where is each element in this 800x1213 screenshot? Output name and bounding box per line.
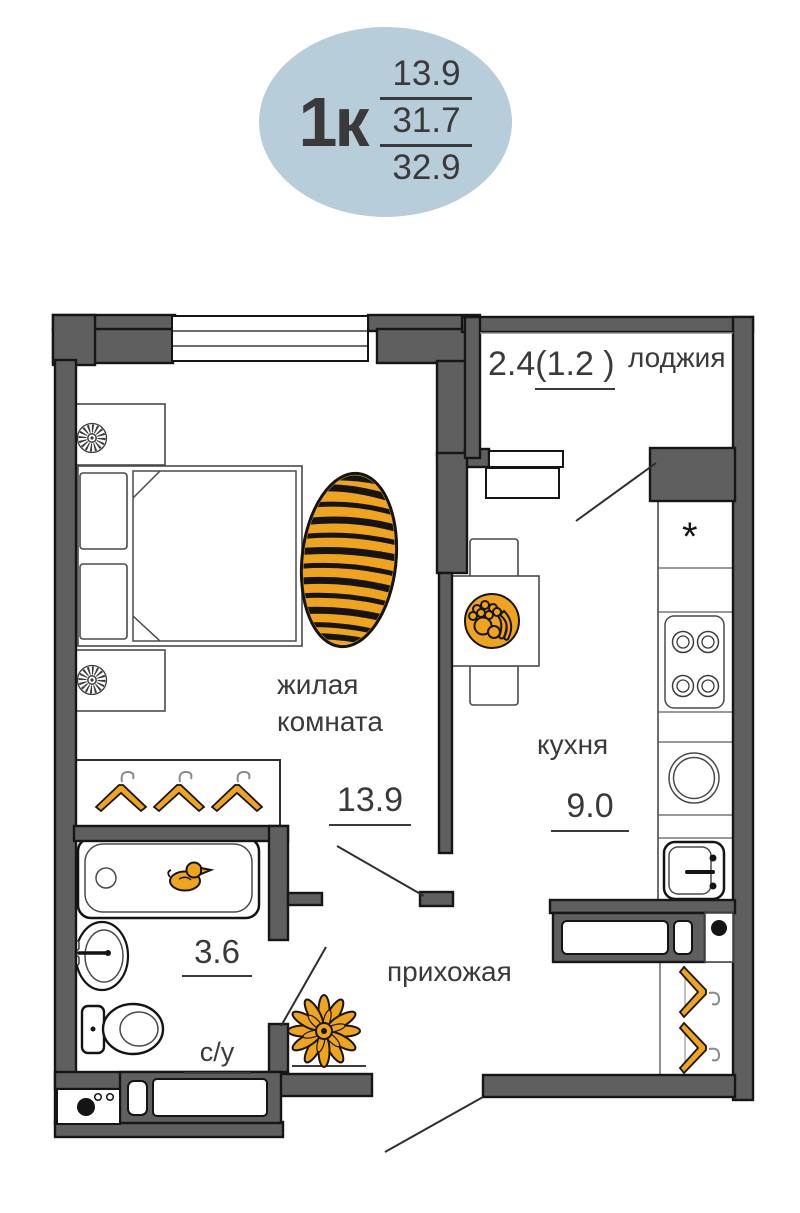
zebra-rug-icon [293,469,405,652]
plant-icon [78,666,107,695]
hanger-icon [680,1023,719,1073]
washbasin-icon [70,922,128,990]
loggia-door-swing [576,463,656,521]
flower-icon [288,995,360,1067]
living-room-area: 13.9 [329,781,411,826]
pillow [80,473,127,549]
pillow [80,564,127,639]
loggia-area: 2.4 (1.2 ) [488,345,615,390]
kitchen-label: кухня [537,729,608,761]
bathroom-area: 3.6 [182,933,252,977]
nightstand-top [76,404,165,465]
loggia-window [486,451,563,498]
living-room-label: жилая комната [277,666,422,740]
entrance-door-swing [385,1097,483,1152]
kitchen-sink-icon [664,842,724,899]
electrical-panel [57,1089,120,1124]
toilet-icon [82,1004,163,1054]
kitchen-bottom-unit [550,900,735,962]
living-door-swing [337,846,424,896]
plant-icon [78,424,107,453]
kitchen-area: 9.0 [551,787,629,832]
loggia-label: лоджия [628,342,725,374]
window [172,316,368,361]
bathtub-icon [78,838,259,918]
nightstand-bottom [76,650,165,711]
kitchen-counter-column [658,500,733,902]
floor-plan-drawing [0,0,800,1213]
floor-plan-page: 1к 13.9 31.7 32.9 [0,0,800,1213]
fruit-bowl-icon [465,594,519,648]
hanger-icon [680,967,719,1017]
shoe-cabinet [120,1072,281,1123]
bathroom-label: с/у [184,1037,250,1074]
wardrobe-hangers [76,760,280,826]
loggia-area-full: 2.4 [488,345,535,390]
loggia-area-reduced: (1.2 ) [535,345,614,390]
entry-closet [660,962,733,1075]
bed [78,466,302,646]
fridge-symbol: * [682,515,698,560]
hallway-label: прихожая [387,956,512,988]
